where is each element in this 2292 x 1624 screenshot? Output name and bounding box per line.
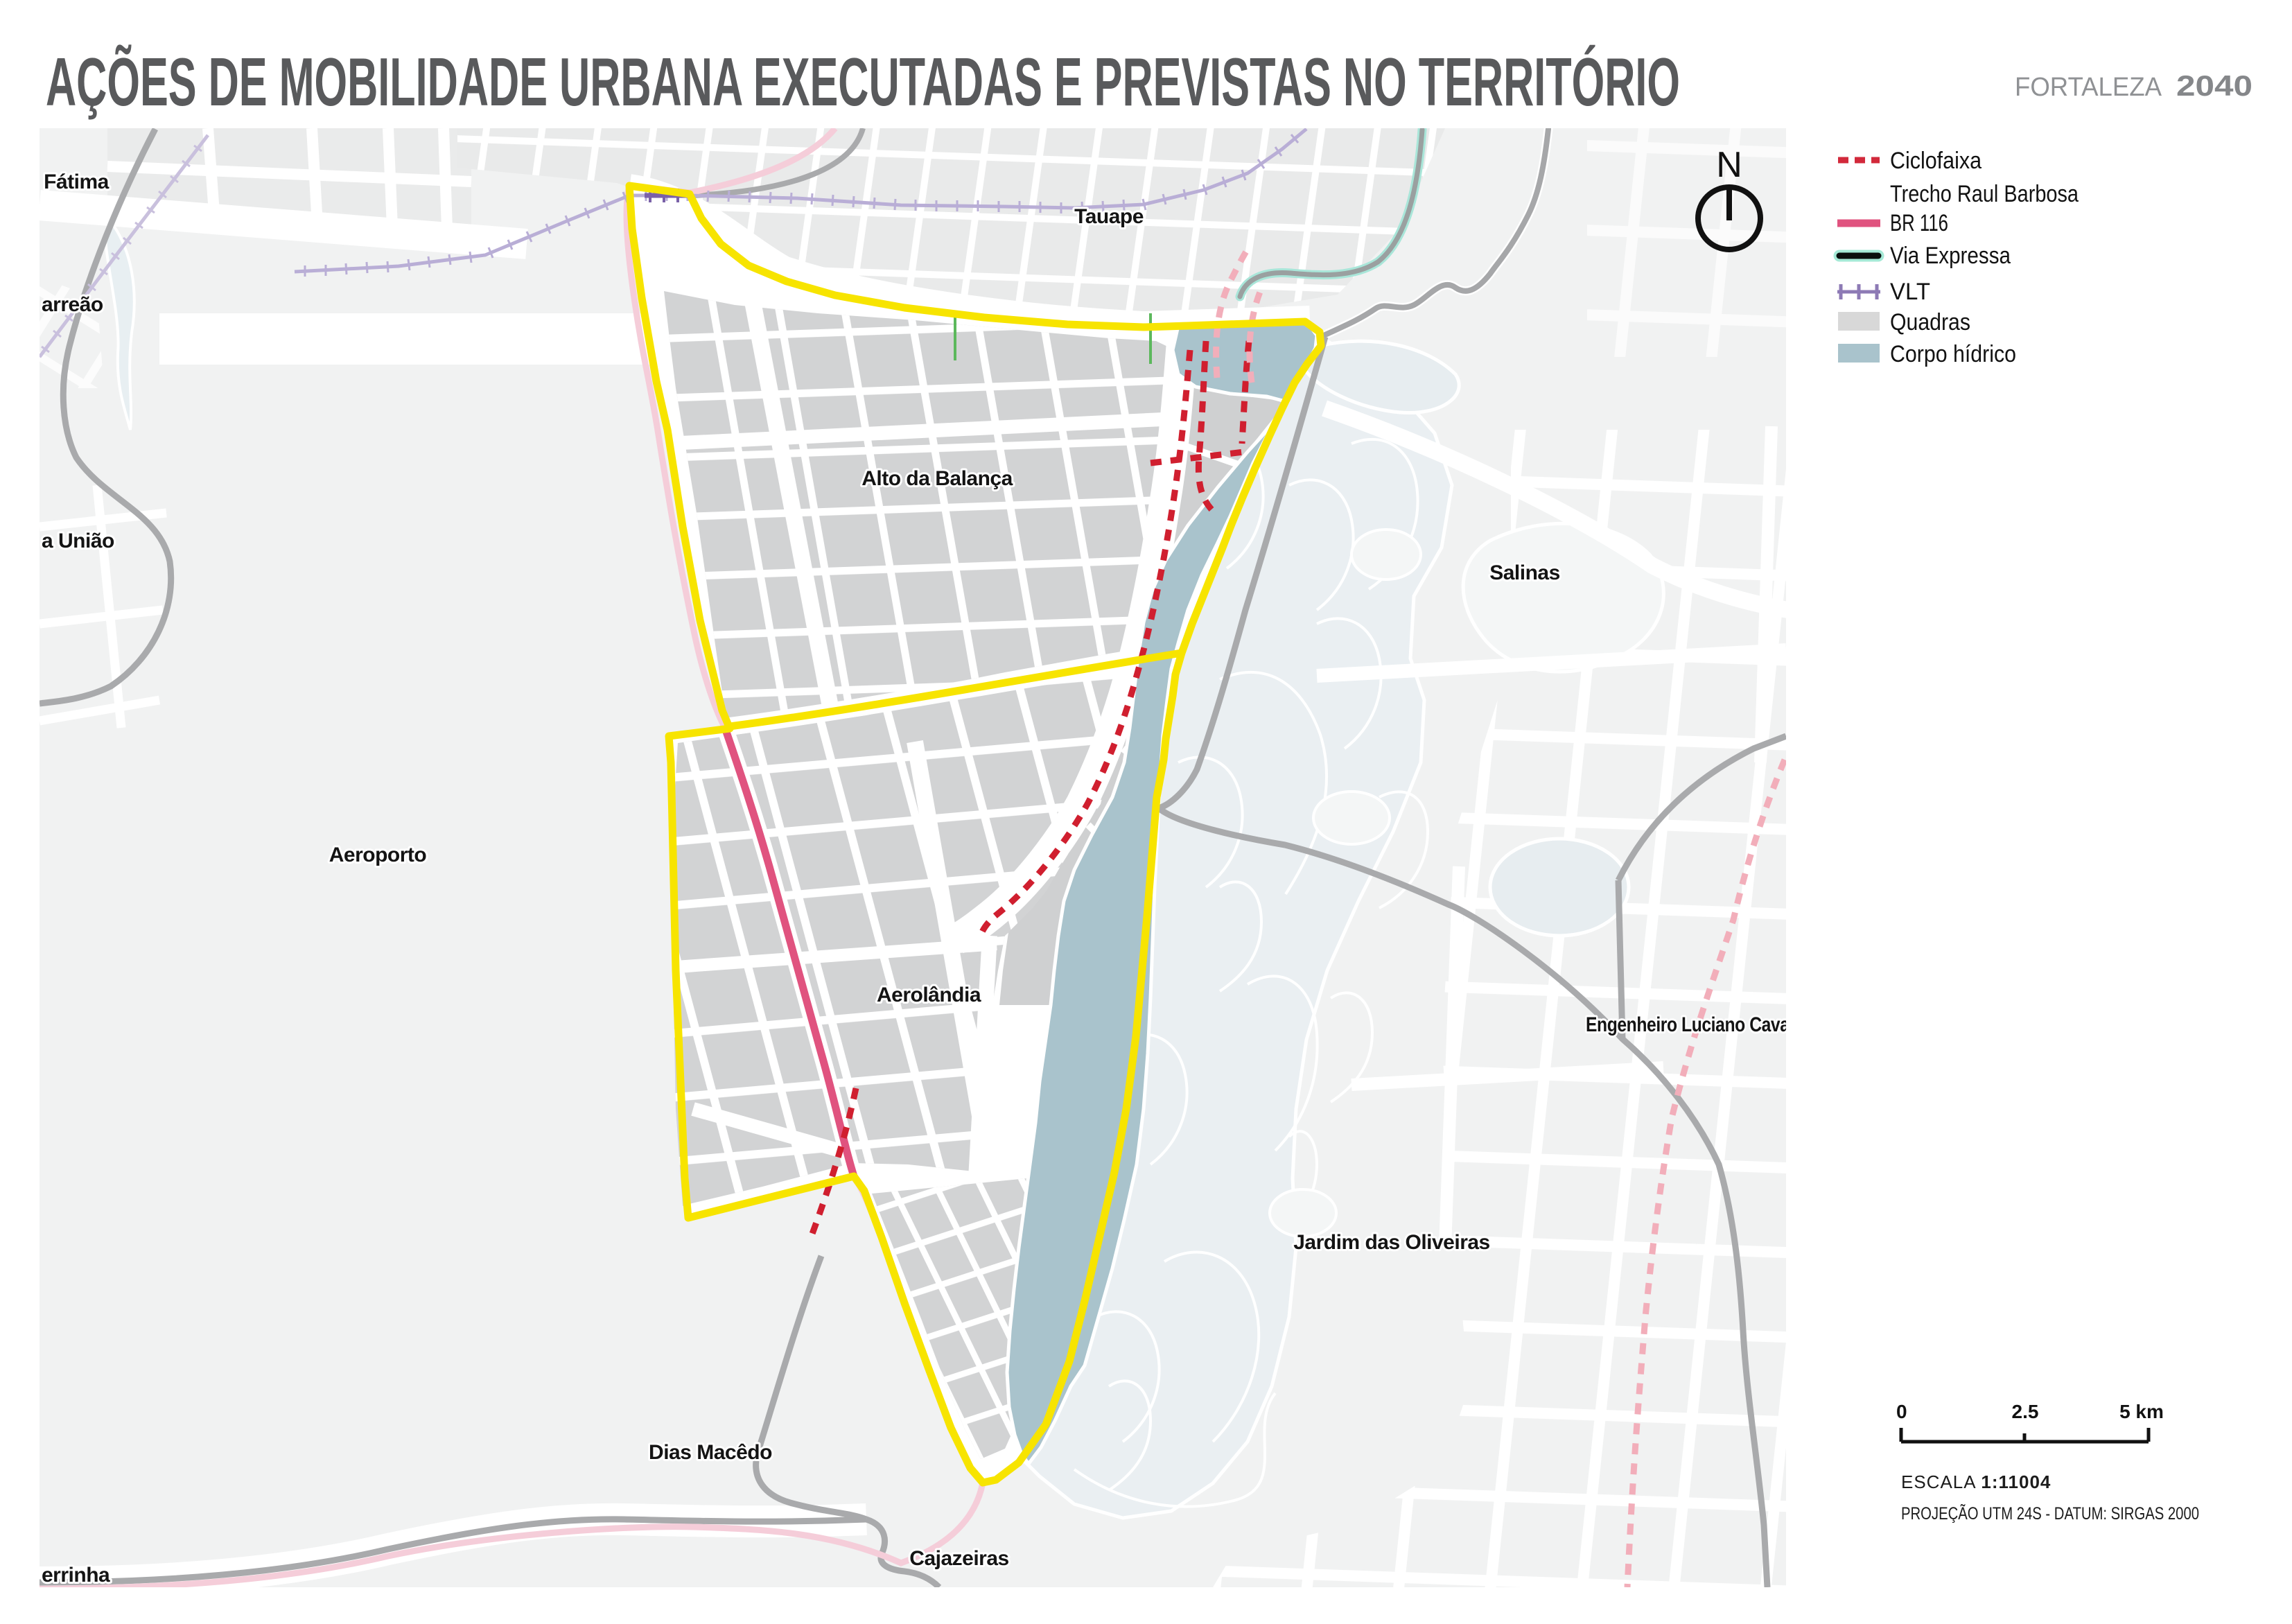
svg-text:Ciclofaixa: Ciclofaixa bbox=[1890, 148, 1982, 174]
svg-text:5 km: 5 km bbox=[2119, 1401, 2164, 1422]
svg-text:Aeroporto: Aeroporto bbox=[329, 844, 427, 866]
svg-text:Tauape: Tauape bbox=[1074, 205, 1144, 228]
svg-text:Trecho Raul Barbosa: Trecho Raul Barbosa bbox=[1890, 181, 2079, 207]
svg-text:Corpo hídrico: Corpo hídrico bbox=[1890, 341, 2016, 367]
svg-text:VLT: VLT bbox=[1890, 279, 1930, 305]
svg-text:2040: 2040 bbox=[2176, 69, 2252, 102]
svg-text:Jardim das Oliveiras: Jardim das Oliveiras bbox=[1293, 1231, 1490, 1254]
svg-text:Cajazeiras: Cajazeiras bbox=[909, 1547, 1008, 1570]
svg-text:a União: a União bbox=[42, 530, 114, 552]
svg-text:N: N bbox=[1716, 145, 1742, 185]
svg-text:Aerolândia: Aerolândia bbox=[877, 984, 981, 1006]
svg-text:2.5: 2.5 bbox=[2012, 1401, 2039, 1422]
svg-text:0: 0 bbox=[1896, 1401, 1907, 1422]
svg-text:Dias Macêdo: Dias Macêdo bbox=[649, 1441, 772, 1464]
svg-text:Engenheiro Luciano Caval: Engenheiro Luciano Caval bbox=[1586, 1013, 1794, 1036]
svg-text:errinha: errinha bbox=[42, 1564, 110, 1587]
svg-text:arreão: arreão bbox=[42, 293, 103, 316]
svg-text:ESCALA 1:11004: ESCALA 1:11004 bbox=[1901, 1472, 2051, 1492]
svg-text:PROJEÇÃO UTM 24S - DATUM: SIRG: PROJEÇÃO UTM 24S - DATUM: SIRGAS 2000 bbox=[1901, 1503, 2199, 1523]
svg-text:Quadras: Quadras bbox=[1890, 309, 1970, 335]
svg-text:FORTALEZA: FORTALEZA bbox=[2015, 73, 2162, 102]
svg-text:Fátima: Fátima bbox=[44, 171, 110, 193]
svg-text:AÇÕES DE MOBILIDADE URBANA EXE: AÇÕES DE MOBILIDADE URBANA EXECUTADAS E … bbox=[46, 44, 1680, 120]
svg-text:Via Expressa: Via Expressa bbox=[1890, 243, 2011, 269]
svg-text:BR 116: BR 116 bbox=[1890, 210, 1948, 236]
svg-text:Alto da Balança: Alto da Balança bbox=[861, 467, 1013, 490]
svg-text:Salinas: Salinas bbox=[1489, 561, 1560, 584]
